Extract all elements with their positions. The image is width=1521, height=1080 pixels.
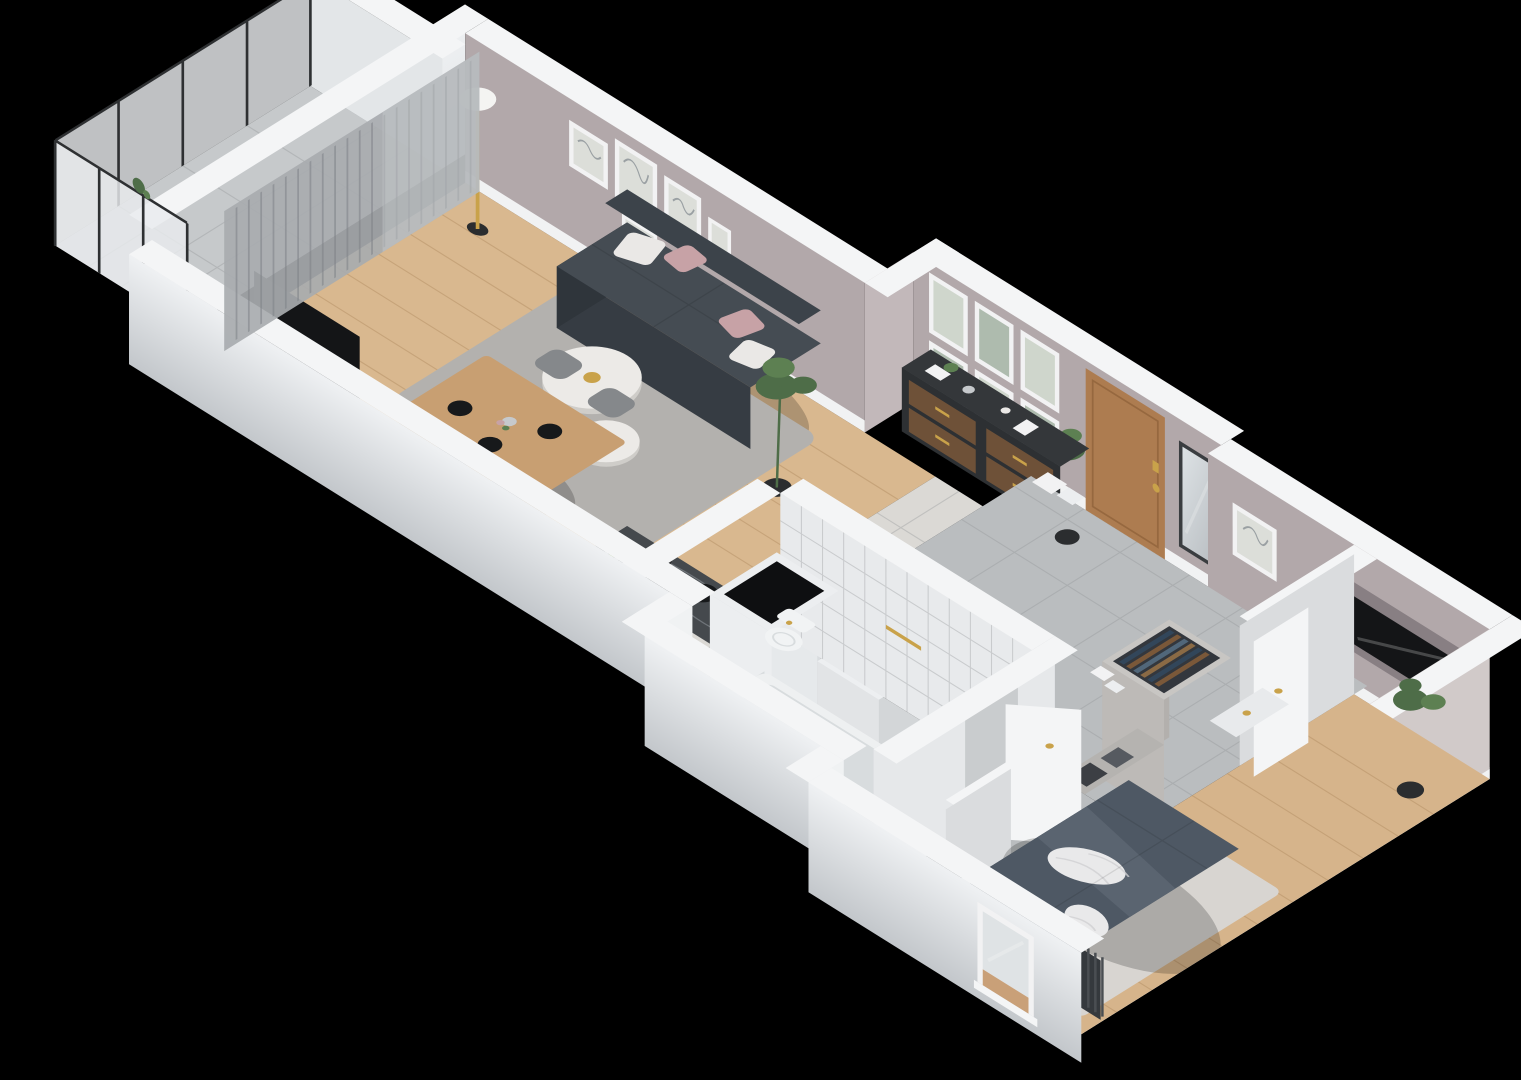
screenshot-root [0,0,1521,1080]
floor-plan-render [0,0,1521,1080]
